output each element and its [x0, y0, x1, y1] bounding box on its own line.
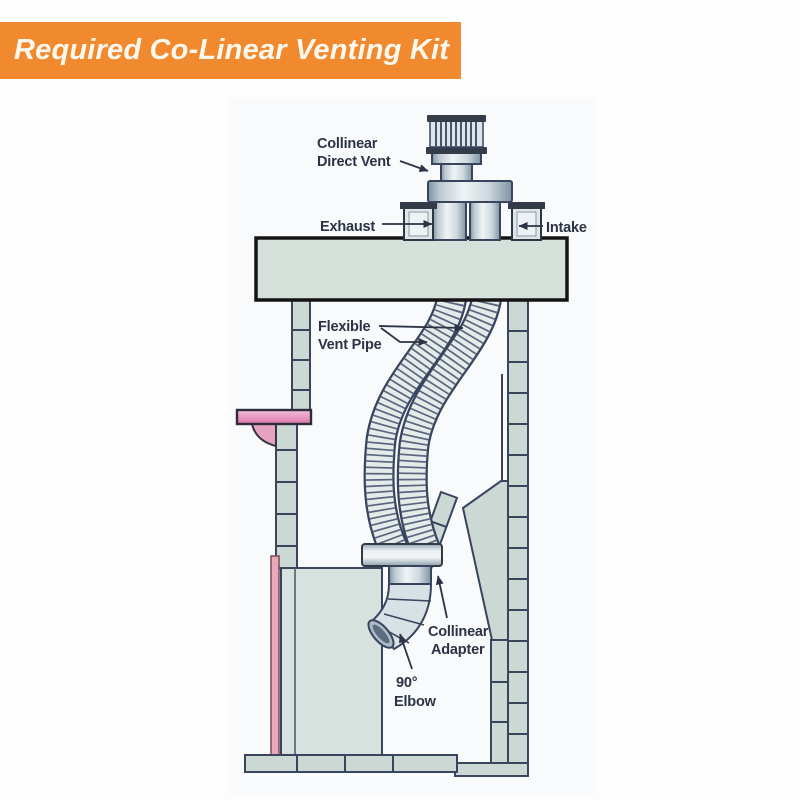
firebox — [281, 568, 382, 757]
left-brick-column-upper — [292, 300, 310, 412]
louver-ribs — [436, 121, 476, 147]
label-adapter-line1: Collinear — [428, 624, 489, 640]
pink-facing-strip — [271, 556, 279, 757]
label-elbow-line1: 90° — [396, 675, 418, 691]
vent-base-collar — [428, 181, 512, 202]
right-base-step — [455, 763, 528, 776]
intake-port-cap — [508, 202, 545, 209]
label-direct-vent-line1: Collinear — [317, 136, 378, 152]
adapter-neck — [389, 566, 431, 584]
hearth-base — [245, 755, 457, 772]
label-flex-line1: Flexible — [318, 319, 371, 335]
vent-neck — [441, 163, 472, 181]
inner-brick-column — [491, 640, 508, 763]
chimney-crown — [256, 238, 567, 300]
label-flex-line2: Vent Pipe — [318, 337, 382, 353]
label-adapter-line2: Adapter — [431, 642, 485, 658]
mantel-shelf — [237, 410, 311, 424]
fireplace — [271, 556, 382, 757]
label-exhaust: Exhaust — [320, 219, 375, 235]
venting-diagram: Collinear Direct Vent Exhaust Intake Fle… — [0, 0, 800, 800]
exhaust-pipe-top — [433, 200, 466, 240]
louver-bottom-rim — [426, 147, 487, 154]
page: { "banner": { "title": "Required Co-Line… — [0, 0, 800, 800]
label-elbow-line2: Elbow — [394, 694, 437, 710]
label-direct-vent-line2: Direct Vent — [317, 154, 391, 170]
louver-top-rim — [427, 115, 486, 122]
right-brick-column — [508, 300, 528, 763]
intake-pipe-top — [470, 200, 500, 240]
exhaust-port-cap — [400, 202, 437, 209]
label-intake: Intake — [546, 220, 587, 236]
collinear-adapter — [362, 544, 442, 566]
